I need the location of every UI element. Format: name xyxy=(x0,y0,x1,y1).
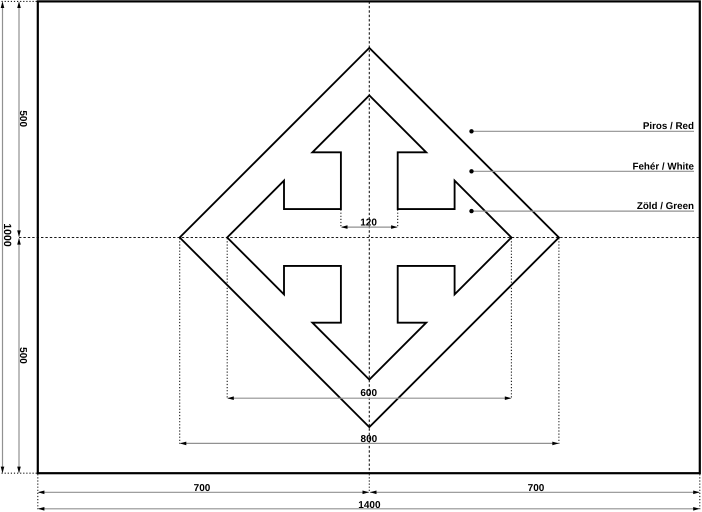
svg-text:1000: 1000 xyxy=(1,223,13,247)
svg-text:500: 500 xyxy=(17,110,28,127)
svg-text:600: 600 xyxy=(360,388,377,399)
svg-text:Piros / Red: Piros / Red xyxy=(643,121,694,132)
svg-text:1400: 1400 xyxy=(358,500,381,511)
svg-text:120: 120 xyxy=(360,218,377,229)
svg-text:500: 500 xyxy=(17,347,28,364)
svg-text:800: 800 xyxy=(361,434,378,445)
svg-text:Fehér / White: Fehér / White xyxy=(632,161,694,172)
svg-text:Zöld / Green: Zöld / Green xyxy=(637,201,694,212)
svg-text:700: 700 xyxy=(528,483,545,494)
svg-text:700: 700 xyxy=(194,483,211,494)
